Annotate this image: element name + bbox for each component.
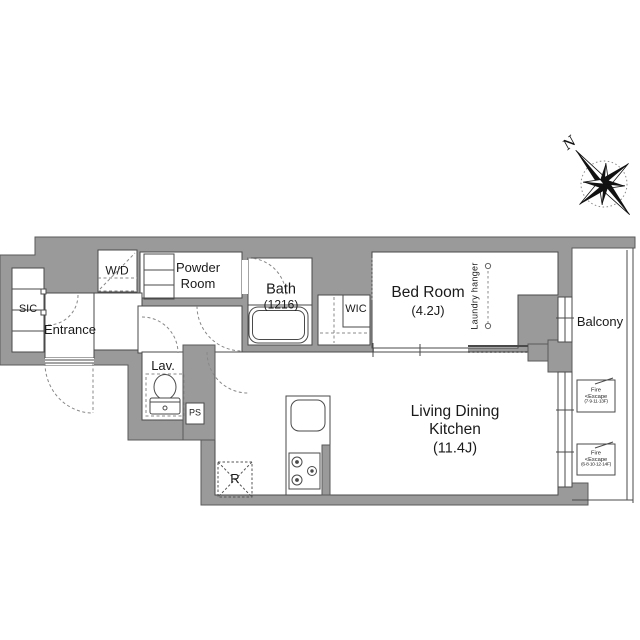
label-bath: Bath <box>266 282 296 297</box>
label-ldk-size: (11.4J) <box>433 441 477 456</box>
label-powder-2: Room <box>181 277 216 291</box>
label-lav: Lav. <box>151 359 175 373</box>
label-ps: PS <box>189 408 201 417</box>
entrance-door-arc <box>45 363 93 413</box>
kitchen-stub-wall <box>322 445 330 495</box>
label-fire-escape-2: Fire <Escape (6·8·10·12·14F) <box>581 450 611 468</box>
label-bath-size: (1216) <box>264 299 299 312</box>
label-sic: SIC <box>19 304 37 316</box>
label-bedroom-size: (4.2J) <box>411 304 444 318</box>
label-laundry-hanger: Laundry hanger <box>470 262 479 329</box>
room-hall <box>94 293 142 350</box>
entrance-sill <box>45 358 94 365</box>
label-fire-escape-1: Fire <Escape (7·9·11·13F) <box>584 387 607 405</box>
wall-ldk-ne-a <box>528 344 550 361</box>
label-bedroom: Bed Room <box>391 285 464 301</box>
label-fridge: R <box>230 472 239 486</box>
label-wic: WIC <box>345 304 366 316</box>
bath-door-opening <box>242 260 248 294</box>
label-ldk-1: Living Dining <box>411 404 500 420</box>
floor-plan: N SIC Entrance W/D Powder Room Bath (121… <box>0 0 640 640</box>
label-powder-1: Powder <box>176 261 220 275</box>
wall-ldk-ne-b <box>548 340 572 372</box>
compass-north-label: N <box>559 133 580 154</box>
label-entrance: Entrance <box>44 323 96 337</box>
floor-plan-drawing: N <box>0 0 640 640</box>
sink-icon <box>291 400 325 431</box>
label-balcony: Balcony <box>577 315 623 329</box>
label-ldk-2: Kitchen <box>429 422 481 438</box>
room-ldk <box>215 352 558 495</box>
compass-rose-icon: N <box>540 117 640 236</box>
wall-lav-east <box>183 345 215 440</box>
label-wd: W/D <box>105 265 128 278</box>
